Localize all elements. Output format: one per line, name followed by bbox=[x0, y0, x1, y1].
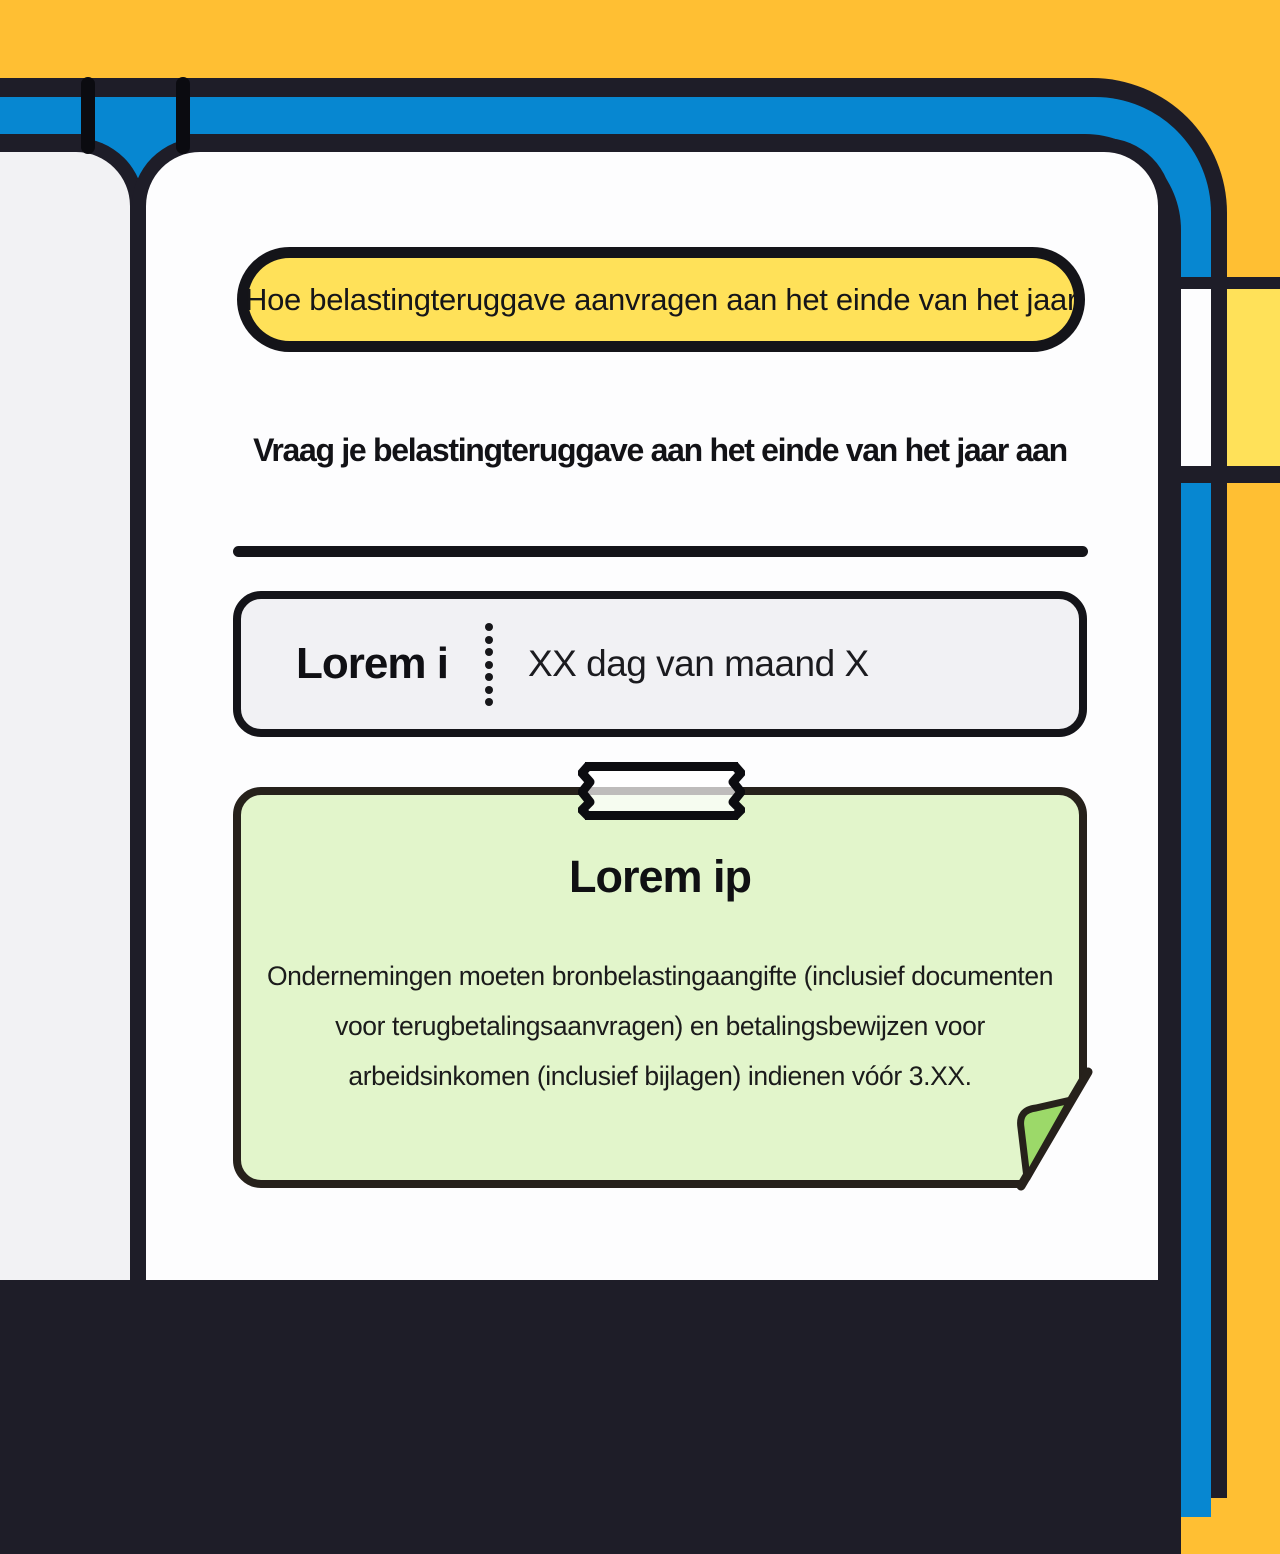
section-heading: Vraag je belastingteruggave aan het eind… bbox=[233, 432, 1087, 469]
sticky-note: Lorem ip Ondernemingen moeten bronbelast… bbox=[233, 787, 1087, 1188]
note-title: Lorem ip bbox=[241, 851, 1079, 903]
accent-block-yellow bbox=[1227, 289, 1280, 466]
illustration-canvas: { "pill": { "title": "Hoe belastingterug… bbox=[0, 0, 1280, 1280]
accent-strip-top bbox=[1158, 277, 1280, 289]
schedule-value: XX dag van maand X bbox=[528, 643, 869, 685]
divider-line bbox=[233, 546, 1088, 557]
dotted-separator-icon bbox=[485, 623, 493, 706]
accent-strip-bottom bbox=[1158, 466, 1280, 483]
page-title: Hoe belastingteruggave aanvragen aan het… bbox=[245, 282, 1077, 318]
left-page bbox=[0, 152, 130, 1280]
tape-icon bbox=[578, 762, 745, 820]
folded-corner-icon bbox=[975, 1060, 1105, 1195]
schedule-row: Lorem i XX dag van maand X bbox=[233, 591, 1087, 737]
highlight-pill: Hoe belastingteruggave aanvragen aan het… bbox=[237, 247, 1085, 352]
accent-window-white bbox=[1181, 289, 1211, 466]
binder-pin-icon bbox=[81, 77, 95, 154]
schedule-label: Lorem i bbox=[296, 639, 448, 689]
binder-pin-icon bbox=[176, 77, 190, 154]
note-body: Ondernemingen moeten bronbelastingaangif… bbox=[248, 951, 1072, 1101]
